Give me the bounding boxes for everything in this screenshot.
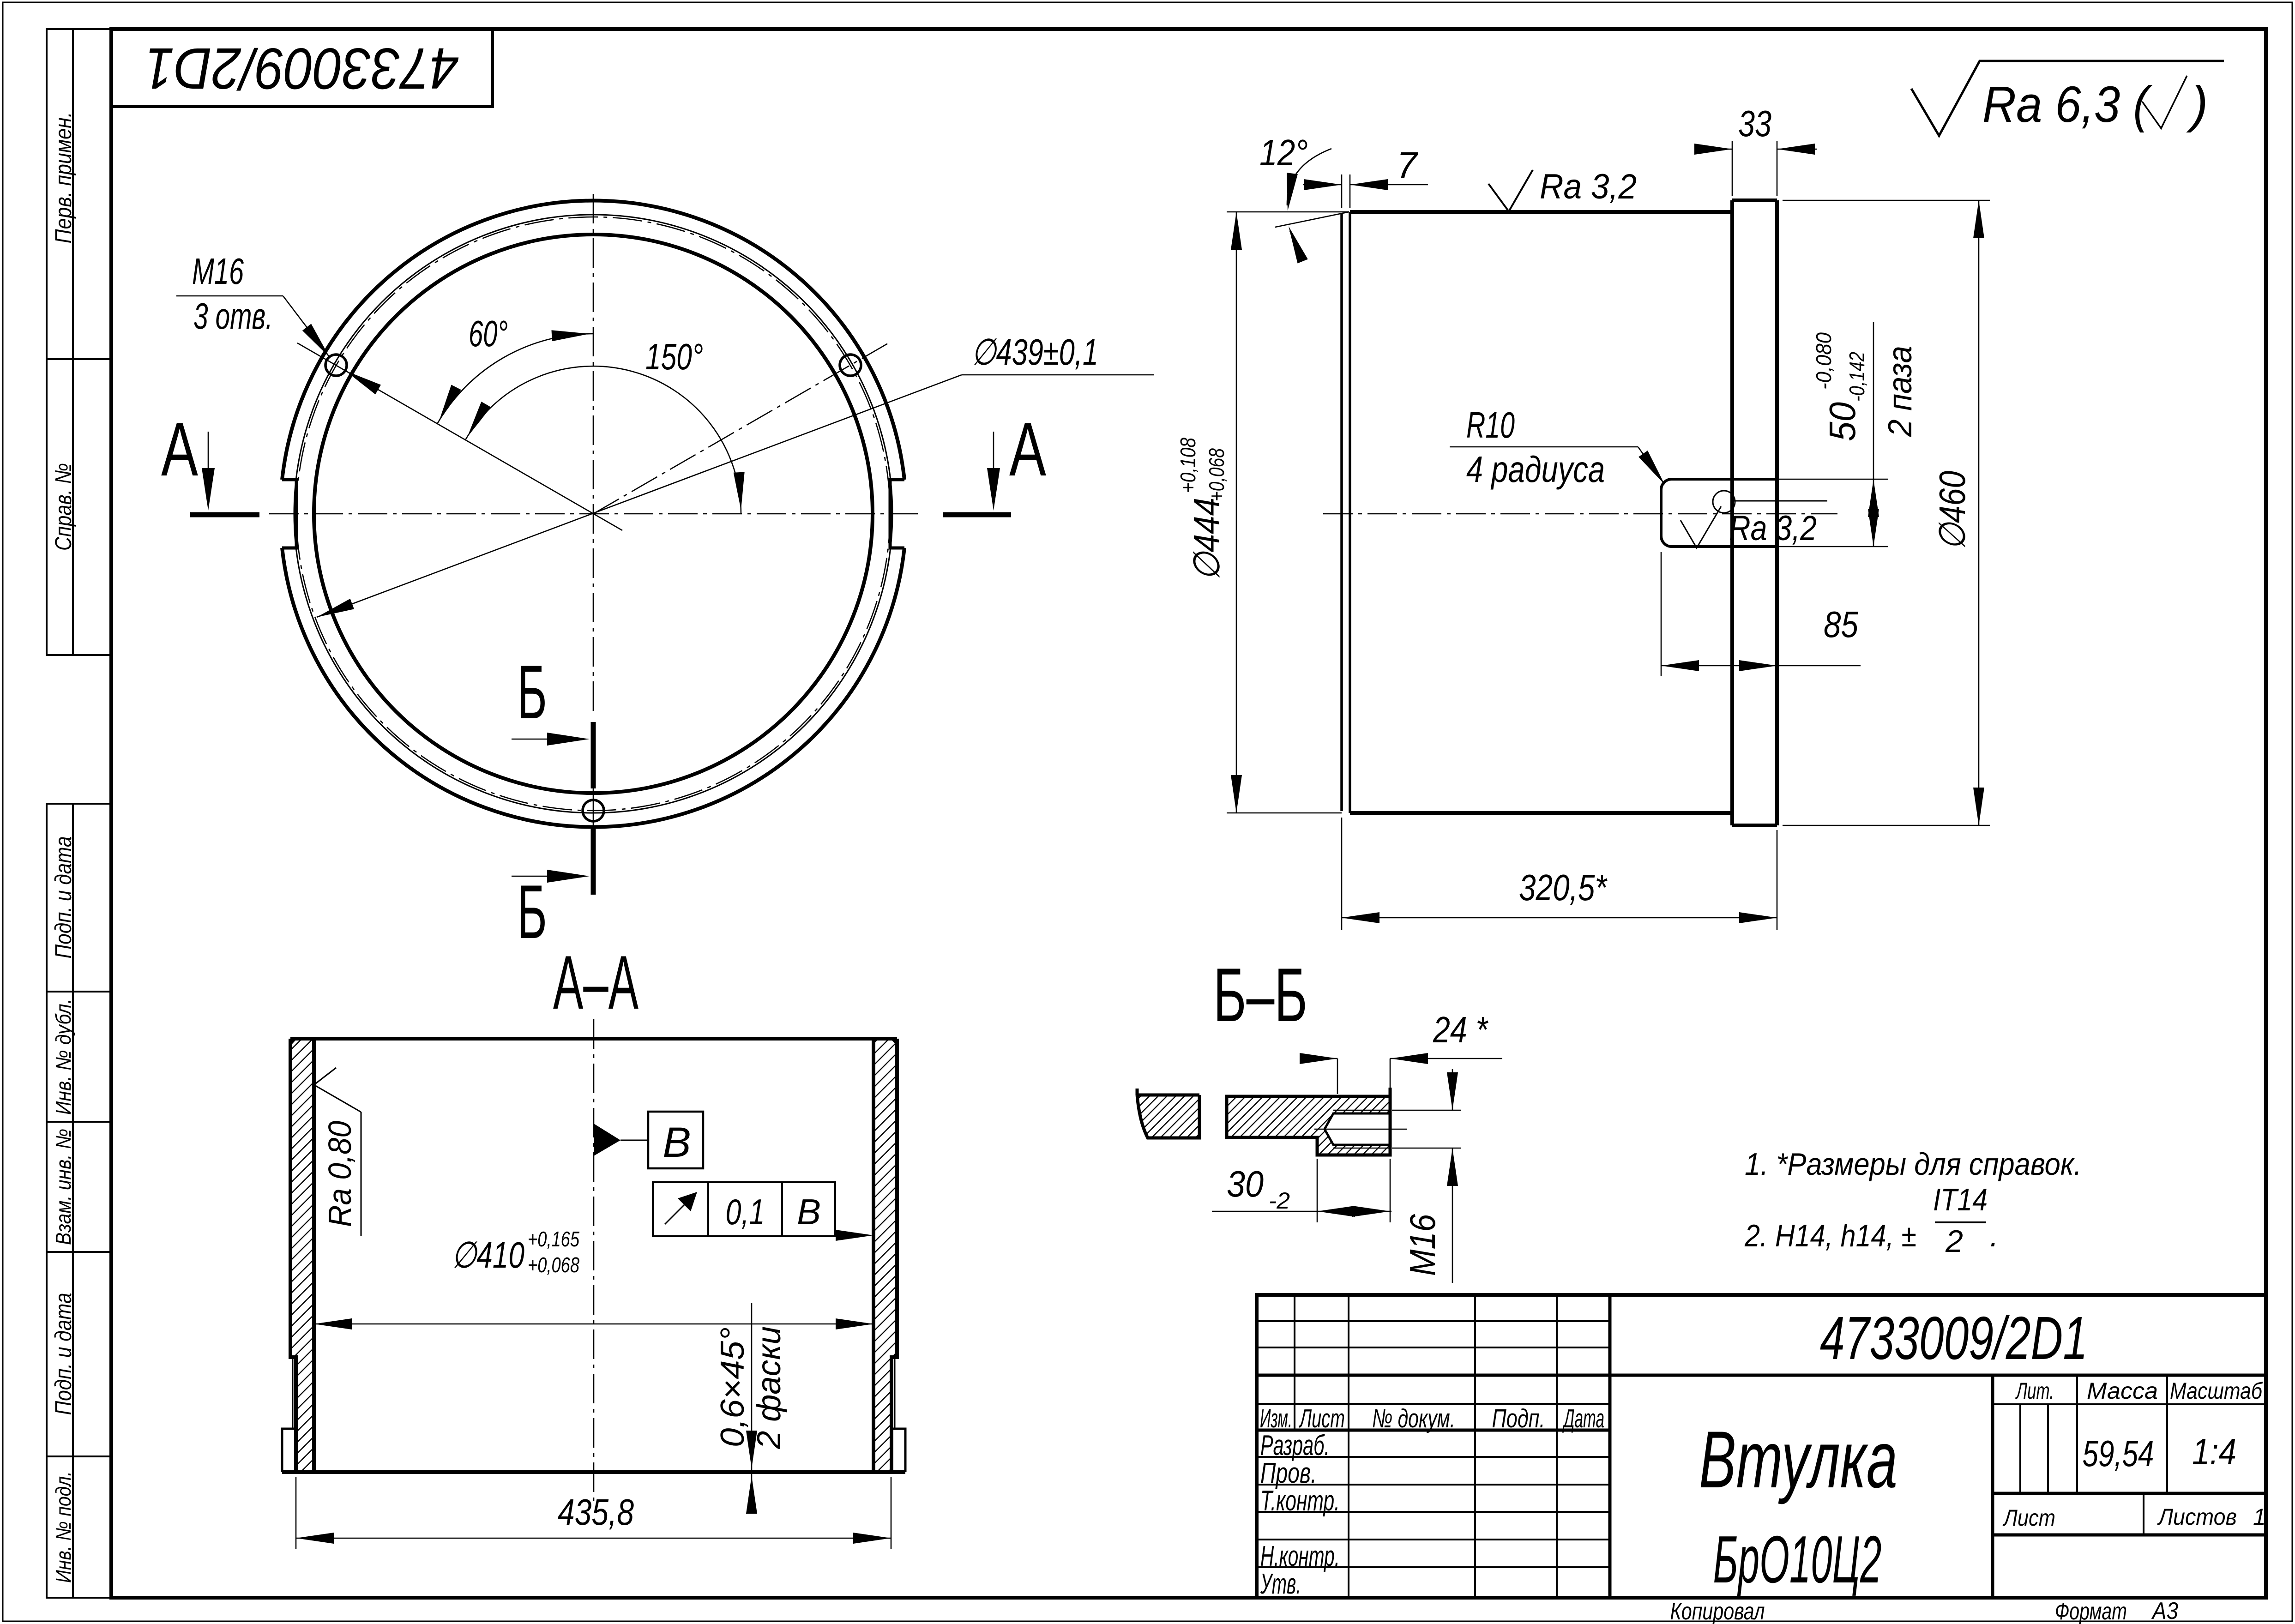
svg-text:Подп. и дата: Подп. и дата — [50, 1293, 76, 1415]
svg-text:∅460: ∅460 — [1932, 471, 1973, 550]
svg-text:2 паза: 2 паза — [1882, 346, 1919, 437]
svg-text:Дата: Дата — [1562, 1404, 1604, 1433]
svg-text:-2: -2 — [1269, 1188, 1290, 1214]
svg-text:Ra 3,2: Ra 3,2 — [1729, 509, 1817, 548]
svg-text:59,54: 59,54 — [2083, 1433, 2154, 1474]
svg-text:0,1: 0,1 — [726, 1191, 765, 1232]
svg-text:4733009/2D1: 4733009/2D1 — [145, 36, 459, 101]
svg-text:Н.контр.: Н.контр. — [1260, 1540, 1340, 1572]
svg-text:Масса: Масса — [2087, 1378, 2158, 1404]
svg-text:Перв. примен.: Перв. примен. — [50, 112, 76, 244]
svg-text:Лит.: Лит. — [2015, 1378, 2054, 1404]
svg-text:24 *: 24 * — [1433, 1009, 1488, 1050]
svg-text:Инв. № подл.: Инв. № подл. — [51, 1471, 75, 1583]
svg-text:Ra 0,80: Ra 0,80 — [322, 1121, 358, 1227]
svg-text:+0,165: +0,165 — [528, 1227, 579, 1251]
svg-text:2. Н14, h14, ±: 2. Н14, h14, ± — [1744, 1218, 1916, 1253]
svg-text:Ra 3,2: Ra 3,2 — [1540, 167, 1637, 206]
svg-text:Масштаб: Масштаб — [2170, 1378, 2263, 1404]
svg-text:150°: 150° — [645, 336, 703, 377]
svg-text:4733009/2D1: 4733009/2D1 — [1820, 1304, 2088, 1372]
svg-text:Разраб.: Разраб. — [1260, 1430, 1330, 1462]
svg-text:7: 7 — [1397, 144, 1418, 186]
svg-text:Втулка: Втулка — [1699, 1415, 1897, 1505]
svg-text:.: . — [1990, 1218, 1999, 1253]
svg-text:БрО10Ц2: БрО10Ц2 — [1713, 1522, 1882, 1597]
svg-text:Справ. №: Справ. № — [50, 463, 76, 551]
svg-text:∅410: ∅410 — [452, 1234, 524, 1275]
svg-text:R10: R10 — [1466, 404, 1515, 445]
svg-text:+0,108: +0,108 — [1176, 438, 1200, 493]
svg-text:В: В — [663, 1119, 691, 1166]
svg-text:-0,080: -0,080 — [1812, 332, 1836, 390]
svg-text:М16: М16 — [1402, 1214, 1443, 1276]
svg-text:12°: 12° — [1259, 132, 1308, 173]
svg-text:Лист: Лист — [1298, 1404, 1345, 1433]
svg-text:Инв. № дубл.: Инв. № дубл. — [51, 998, 75, 1115]
svg-text:Подп. и дата: Подп. и дата — [50, 836, 76, 959]
svg-text:∅444: ∅444 — [1186, 498, 1227, 581]
svg-text:Листов: Листов — [2157, 1504, 2237, 1530]
svg-text:320,5*: 320,5* — [1519, 867, 1608, 908]
svg-text:Б: Б — [517, 869, 547, 954]
svg-text:Лист: Лист — [2002, 1505, 2055, 1531]
svg-text:В: В — [797, 1191, 821, 1232]
svg-text:+0,068: +0,068 — [1205, 448, 1229, 501]
svg-text:Утв.: Утв. — [1260, 1568, 1301, 1600]
svg-text:Пров.: Пров. — [1260, 1457, 1317, 1489]
svg-text:IT14: IT14 — [1933, 1182, 1988, 1217]
svg-text:2 фаски: 2 фаски — [751, 1326, 788, 1450]
svg-text:Подп.: Подп. — [1492, 1404, 1545, 1433]
svg-text:33: 33 — [1738, 103, 1771, 144]
svg-text:Ra 6,3 (: Ra 6,3 ( — [1982, 76, 2153, 133]
svg-text:А: А — [161, 407, 198, 492]
svg-text:Формат: Формат — [2055, 1598, 2127, 1624]
svg-text:А–А: А–А — [553, 940, 639, 1025]
svg-text:4 радиуса: 4 радиуса — [1466, 449, 1605, 490]
svg-text:Б: Б — [517, 650, 547, 734]
svg-text:-0,142: -0,142 — [1845, 352, 1869, 402]
svg-text:435,8: 435,8 — [558, 1492, 634, 1533]
svg-text:∅439±0,1: ∅439±0,1 — [971, 331, 1098, 373]
svg-text:60°: 60° — [469, 313, 508, 354]
svg-text:0,6×45°: 0,6×45° — [714, 1327, 751, 1447]
svg-text:Взам. инв. №: Взам. инв. № — [51, 1129, 75, 1245]
svg-text:1: 1 — [2253, 1504, 2266, 1530]
svg-text:3 отв.: 3 отв. — [193, 295, 273, 337]
svg-text:М16: М16 — [192, 251, 244, 292]
svg-text:1. *Размеры для справок.: 1. *Размеры для справок. — [1745, 1147, 2082, 1182]
svg-text:А: А — [1009, 407, 1046, 492]
svg-text:85: 85 — [1824, 604, 1858, 645]
svg-text:1:4: 1:4 — [2192, 1431, 2236, 1472]
svg-text:30: 30 — [1227, 1163, 1264, 1204]
svg-text:№ докум.: № докум. — [1372, 1404, 1455, 1433]
svg-text:Изм.: Изм. — [1260, 1404, 1292, 1433]
svg-text:2: 2 — [1945, 1224, 1963, 1259]
svg-text:Т.контр.: Т.контр. — [1260, 1485, 1340, 1517]
svg-text:Б–Б: Б–Б — [1213, 952, 1307, 1037]
svg-text:+0,068: +0,068 — [528, 1253, 579, 1277]
svg-text:А3: А3 — [2151, 1598, 2178, 1624]
svg-text:Копировал: Копировал — [1670, 1598, 1765, 1624]
svg-text:50: 50 — [1822, 402, 1863, 441]
